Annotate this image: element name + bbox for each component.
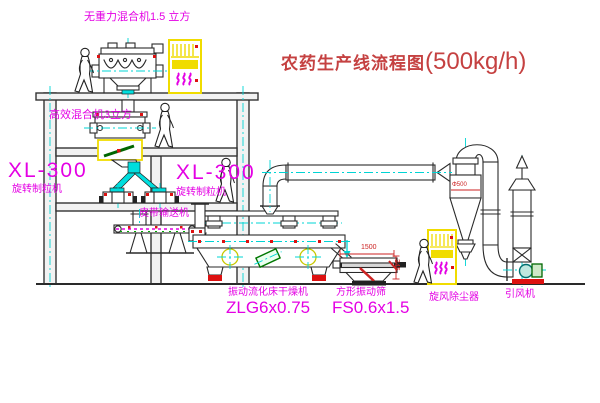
label-fan: 引风机 (505, 290, 535, 300)
person-top-floor (75, 48, 94, 92)
label-dryer-name: 振动流化床干燥机 (228, 288, 308, 298)
label-belt-conveyor: 皮带输送机 (139, 209, 189, 219)
dimension-cyclone-diameter: Φ500 (452, 182, 467, 188)
label-sieve-name: 方形振动筛 (336, 288, 386, 298)
control-cabinet-top (169, 40, 201, 93)
title-capacity: (500kg/h) (425, 48, 526, 75)
dryer-exhaust-duct (260, 160, 452, 214)
label-high-efficiency-mixer: 高效混合机3立方 (49, 110, 132, 121)
process-flow-diagram: 农药生产线流程图(500kg/h) 无重力混合机1.5 立方 高效混合机3立方 … (0, 0, 600, 403)
dimension-sieve-length: 1500 (361, 244, 377, 251)
title-text: 农药生产线流程图 (281, 54, 425, 73)
label-gravity-free-mixer: 无重力混合机1.5 立方 (84, 12, 190, 23)
fan-impeller (520, 265, 533, 278)
fan-and-stack (481, 155, 549, 287)
label-cyclone: 旋风除尘器 (429, 293, 479, 303)
label-granulator-right-model: XL-300 (176, 162, 256, 183)
label-granulator-left-model: XL-300 (8, 160, 88, 181)
label-granulator-left-name: 旋转制粒机 (12, 185, 62, 195)
dimension-sieve-height: 345 (393, 259, 400, 271)
label-sieve-model: FS0.6x1.5 (332, 299, 410, 316)
control-cabinet-ground (428, 230, 456, 284)
fluid-bed-dryer (188, 211, 351, 281)
label-dryer-model: ZLG6x0.75 (226, 299, 310, 316)
fan-motor (532, 264, 542, 277)
diagram-title: 农药生产线流程图(500kg/h) (281, 50, 526, 74)
label-granulator-right-name: 旋转制粒机 (176, 188, 226, 198)
person-second-floor (155, 103, 174, 147)
